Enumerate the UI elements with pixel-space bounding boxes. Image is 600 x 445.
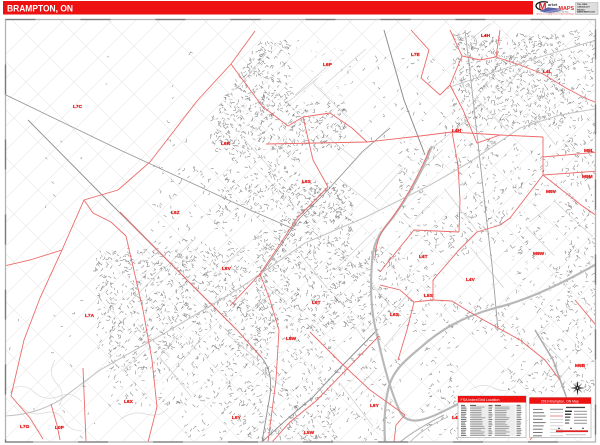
svg-text:L4L: L4L — [543, 69, 552, 75]
svg-text:M9W: M9W — [533, 251, 545, 257]
svg-text:L6V: L6V — [222, 266, 232, 272]
svg-text:L5S: L5S — [424, 293, 434, 299]
svg-text:L6P: L6P — [323, 62, 333, 68]
svg-text:L7E: L7E — [411, 52, 421, 58]
svg-text:L4V: L4V — [466, 277, 476, 283]
svg-text:L6Z: L6Z — [171, 210, 180, 216]
svg-text:L0P: L0P — [55, 425, 65, 431]
svg-text:M9L: M9L — [584, 148, 594, 154]
svg-text:arket: arket — [548, 2, 558, 7]
svg-text:L7A: L7A — [85, 313, 95, 319]
svg-text:1-888-434-6277: 1-888-434-6277 — [577, 5, 590, 8]
svg-text:FSA Index/Grid Location: FSA Index/Grid Location — [461, 398, 500, 402]
svg-text:L6X: L6X — [124, 399, 134, 405]
svg-text:2019 Brampton, ON Map: 2019 Brampton, ON Map — [541, 399, 579, 403]
svg-text:L6W: L6W — [286, 336, 297, 342]
svg-text:L4H: L4H — [481, 33, 491, 39]
svg-text:L7G: L7G — [20, 424, 30, 430]
svg-text:MARKETMAPS.COM: MARKETMAPS.COM — [577, 10, 595, 13]
svg-text:L6Y: L6Y — [370, 403, 380, 409]
svg-text:L6R: L6R — [221, 141, 231, 147]
svg-text:M9M: M9M — [582, 174, 593, 180]
svg-text:L6Y: L6Y — [232, 415, 242, 421]
svg-text:L6S: L6S — [302, 179, 312, 185]
svg-text:M9B: M9B — [575, 363, 586, 369]
svg-text:L4T: L4T — [419, 254, 428, 260]
svg-text:L4H: L4H — [452, 128, 462, 134]
svg-text:America's Leading Source of Bu: America's Leading Source of Business Map… — [537, 13, 575, 16]
svg-text:L6T: L6T — [312, 300, 321, 306]
svg-text:L5W: L5W — [304, 430, 315, 436]
svg-text:M9V: M9V — [546, 189, 557, 195]
svg-text:L6S: L6S — [390, 312, 400, 318]
svg-text:BRAMPTON, ON: BRAMPTON, ON — [7, 4, 73, 14]
svg-text:L7C: L7C — [73, 104, 83, 110]
